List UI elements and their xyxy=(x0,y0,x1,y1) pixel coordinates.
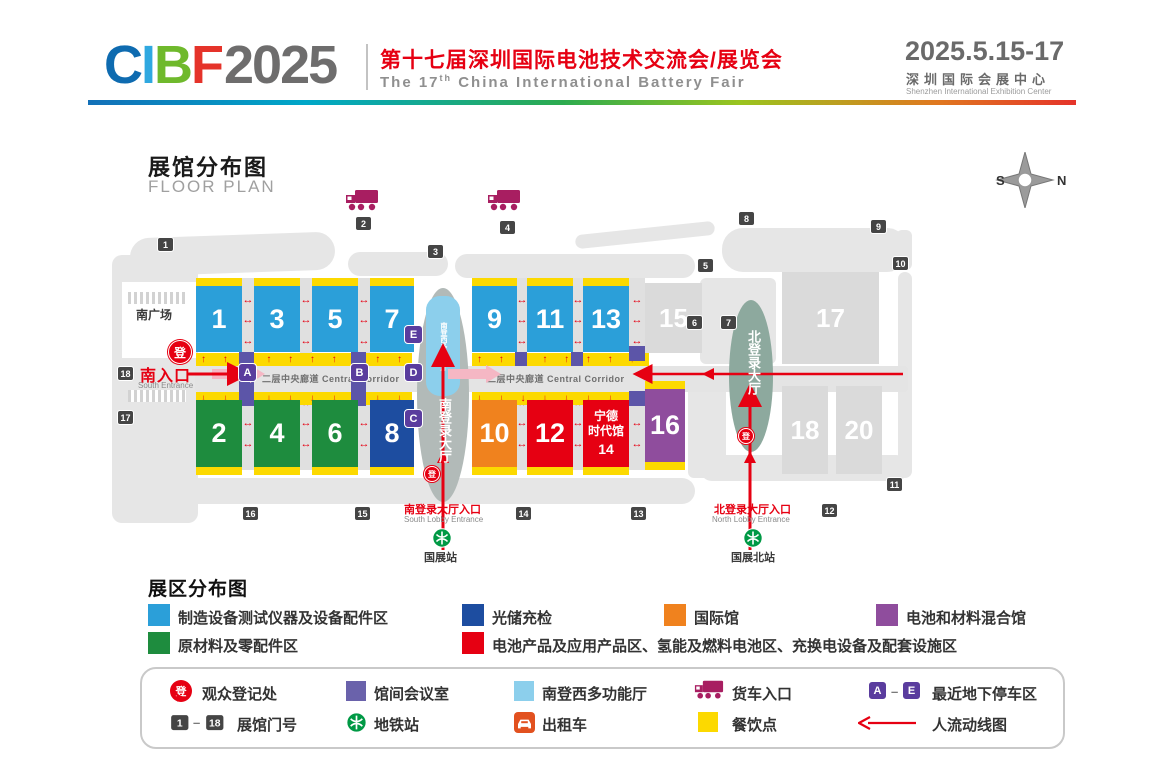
hall-17: 17 xyxy=(782,272,879,364)
gate-badge-18: 18 xyxy=(117,366,134,381)
gate-badge-14: 14 xyxy=(515,506,532,521)
south-plaza-label: 南广场 xyxy=(136,306,172,323)
gate-badge-10: 10 xyxy=(892,256,909,271)
dining-strip xyxy=(254,467,300,475)
header-divider xyxy=(366,44,368,90)
gate-badge-12: 12 xyxy=(821,503,838,518)
dining-strip xyxy=(370,467,414,475)
parking-legend-badge-a: A xyxy=(868,681,887,700)
multi-hall-legend-label: 南登西多功能厅 xyxy=(542,683,647,704)
venue-en: Shenzhen International Exhibition Center xyxy=(906,87,1051,96)
dining-strip xyxy=(527,278,573,286)
dining-strip xyxy=(254,278,300,286)
building-outline xyxy=(128,390,186,402)
gate-badge-3: 3 xyxy=(427,244,444,259)
taxi-legend-label: 出租车 xyxy=(542,714,587,735)
zone-swatch-equipment xyxy=(148,604,170,626)
fair-title-cn: 第十七届深圳国际电池技术交流会/展览会 xyxy=(380,44,783,74)
hall-10: 10 xyxy=(472,400,517,467)
dining-strip xyxy=(645,462,685,470)
dining-strip xyxy=(527,467,573,475)
gate-badge-5: 5 xyxy=(697,258,714,273)
hall-3: 3 xyxy=(254,286,300,352)
registration-legend-label: 观众登记处 xyxy=(202,683,277,704)
dining-legend-label: 餐饮点 xyxy=(732,714,777,735)
hall-12: 12 xyxy=(527,400,573,467)
hall-9: 9 xyxy=(472,286,517,352)
compass-north-label: N xyxy=(1057,173,1066,188)
registration-icon: 登 xyxy=(424,466,440,482)
truck-icon xyxy=(345,188,379,218)
gate-badge-7: 7 xyxy=(720,315,737,330)
meeting-room-block xyxy=(629,391,645,406)
gate-badge-1: 1 xyxy=(157,237,174,252)
zone-label-mixed: 电池和材料混合馆 xyxy=(906,607,1026,628)
flow-arrow-legend-label: 人流动线图 xyxy=(932,714,1007,735)
hall-6: 6 xyxy=(312,400,358,467)
registration-icon: 登 xyxy=(168,340,192,364)
zone-label-materials: 原材料及零配件区 xyxy=(178,635,298,656)
zone-swatch-international xyxy=(664,604,686,626)
zone-swatch-battery xyxy=(462,632,484,654)
gate-badge-8: 8 xyxy=(738,211,755,226)
hall-20: 20 xyxy=(836,386,882,474)
hall-13: 13 xyxy=(583,286,629,352)
zone-swatch-materials xyxy=(148,632,170,654)
meeting-room-block xyxy=(629,346,645,361)
meeting-room-legend-label: 馆间会议室 xyxy=(374,683,449,704)
meeting-room-legend-icon xyxy=(346,681,366,701)
gate-badge-6: 6 xyxy=(686,315,703,330)
hall-11: 11 xyxy=(527,286,573,352)
gate-legend-label: 展馆门号 xyxy=(237,714,297,735)
zones-legend-title: 展区分布图 xyxy=(148,574,248,601)
gate-legend-badge-18: 18 xyxy=(205,714,225,731)
truck-icon xyxy=(487,188,521,218)
taxi-legend-icon xyxy=(514,712,535,733)
zone-swatch-mixed xyxy=(876,604,898,626)
icon-legend-box xyxy=(140,667,1065,749)
north-lobby-entrance-en: North Lobby Entrance xyxy=(712,515,790,524)
dining-strip xyxy=(196,278,242,286)
dining-strip xyxy=(472,278,517,286)
floorplan-title-en: FLOOR PLAN xyxy=(148,177,276,197)
south-entrance-en: South Entrance xyxy=(138,381,193,390)
venue-cn: 深圳国际会展中心 xyxy=(906,69,1050,88)
multi-function-hall: 南登西多功能厅 xyxy=(426,296,460,396)
dining-strip xyxy=(312,467,358,475)
truck-legend-label: 货车入口 xyxy=(732,683,792,704)
parking-badge-c: C xyxy=(404,409,423,428)
hall-5: 5 xyxy=(312,286,358,352)
parking-badge-b: B xyxy=(350,363,369,382)
dining-strip xyxy=(645,381,685,389)
multi-hall-legend-icon xyxy=(514,681,534,701)
building-outline xyxy=(455,254,695,278)
building-outline xyxy=(722,228,908,272)
dining-strip xyxy=(583,278,629,286)
hall-4: 4 xyxy=(254,400,300,467)
gate-badge-4: 4 xyxy=(499,220,516,235)
dining-strip xyxy=(370,278,414,286)
parking-legend-badge-e: E xyxy=(902,681,921,700)
zone-label-equipment: 制造设备测试仪器及设备配件区 xyxy=(178,607,388,628)
corridor-label: 二层中央廊道 Central Corridor xyxy=(262,372,400,385)
zone-label-international: 国际馆 xyxy=(694,607,739,628)
hall-16: 16 xyxy=(645,389,685,462)
gradient-rule xyxy=(88,100,1076,105)
gate-range-dash: – xyxy=(193,715,200,730)
hall-1: 1 xyxy=(196,286,242,352)
fair-date: 2025.5.15-17 xyxy=(905,36,1064,67)
meeting-room-block xyxy=(571,352,583,366)
parking-badge-e: E xyxy=(404,325,423,344)
gate-badge-13: 13 xyxy=(630,506,647,521)
parking-badge-d: D xyxy=(404,363,423,382)
metro-legend-icon xyxy=(346,712,367,738)
parking-badge-a: A xyxy=(238,363,257,382)
dining-strip xyxy=(196,467,242,475)
compass-south-label: S xyxy=(996,173,1005,188)
flow-arrow-legend-icon xyxy=(858,716,916,735)
hall-2: 2 xyxy=(196,400,242,467)
dining-band: ↑ ↑ ↑ ↑ ↑ ↑ ↑ ↑ ↑ ↑ ↑ ↑ ↑ xyxy=(472,353,649,366)
zone-label-storage: 光储充检 xyxy=(492,607,552,628)
south-lobby-label: 南登录大厅 xyxy=(435,398,454,463)
cibf-logo: CIBF2025 xyxy=(104,34,336,96)
truck-legend-icon xyxy=(694,679,724,706)
zone-label-battery: 电池产品及应用产品区、氢能及燃料电池区、充换电设备及配套设施区 xyxy=(492,635,957,656)
dining-strip xyxy=(583,467,629,475)
metro-legend-label: 地铁站 xyxy=(374,714,419,735)
registration-icon: 登 xyxy=(738,428,754,444)
dining-strip xyxy=(312,278,358,286)
metro-south-label: 国展站 xyxy=(424,549,457,565)
gate-badge-16: 16 xyxy=(242,506,259,521)
gate-badge-15: 15 xyxy=(354,506,371,521)
gate-badge-17: 17 xyxy=(117,410,134,425)
dining-strip xyxy=(472,467,517,475)
meeting-room-block xyxy=(515,352,527,366)
registration-legend-icon: 登 xyxy=(170,680,192,702)
metro-north-label: 国展北站 xyxy=(731,549,775,565)
hall-14-catl: 宁德时代馆14 xyxy=(583,400,629,467)
dining-band: ↑ ↑ ↑ ↑ ↑ ↑ ↑ ↑ ↑ ↑ ↑ ↑ ↑ xyxy=(196,353,412,366)
parking-legend-label: 最近地下停车区 xyxy=(932,683,1037,704)
hall-18: 18 xyxy=(782,386,828,474)
zone-swatch-storage xyxy=(462,604,484,626)
corridor-label: 二层中央廊道 Central Corridor xyxy=(487,372,625,385)
fair-title-en: The 17th China International Battery Fai… xyxy=(380,73,746,91)
dining-legend-icon xyxy=(698,712,718,732)
cibf-floorplan-page: { "icons": { "up_row": "↑ ↑ ↑ ↑ ↑ ↑ ↑ ↑ … xyxy=(0,0,1168,765)
gate-badge-2: 2 xyxy=(355,216,372,231)
gate-badge-11: 11 xyxy=(886,477,903,492)
gate-legend-badge-1: 1 xyxy=(170,714,190,731)
building-outline xyxy=(575,221,716,250)
north-lobby-label: 北登录大厅 xyxy=(744,330,763,395)
parking-range-dash: – xyxy=(891,684,898,699)
building-outline xyxy=(128,292,186,304)
south-lobby-entrance-en: South Lobby Entrance xyxy=(404,515,483,524)
gate-badge-9: 9 xyxy=(870,219,887,234)
